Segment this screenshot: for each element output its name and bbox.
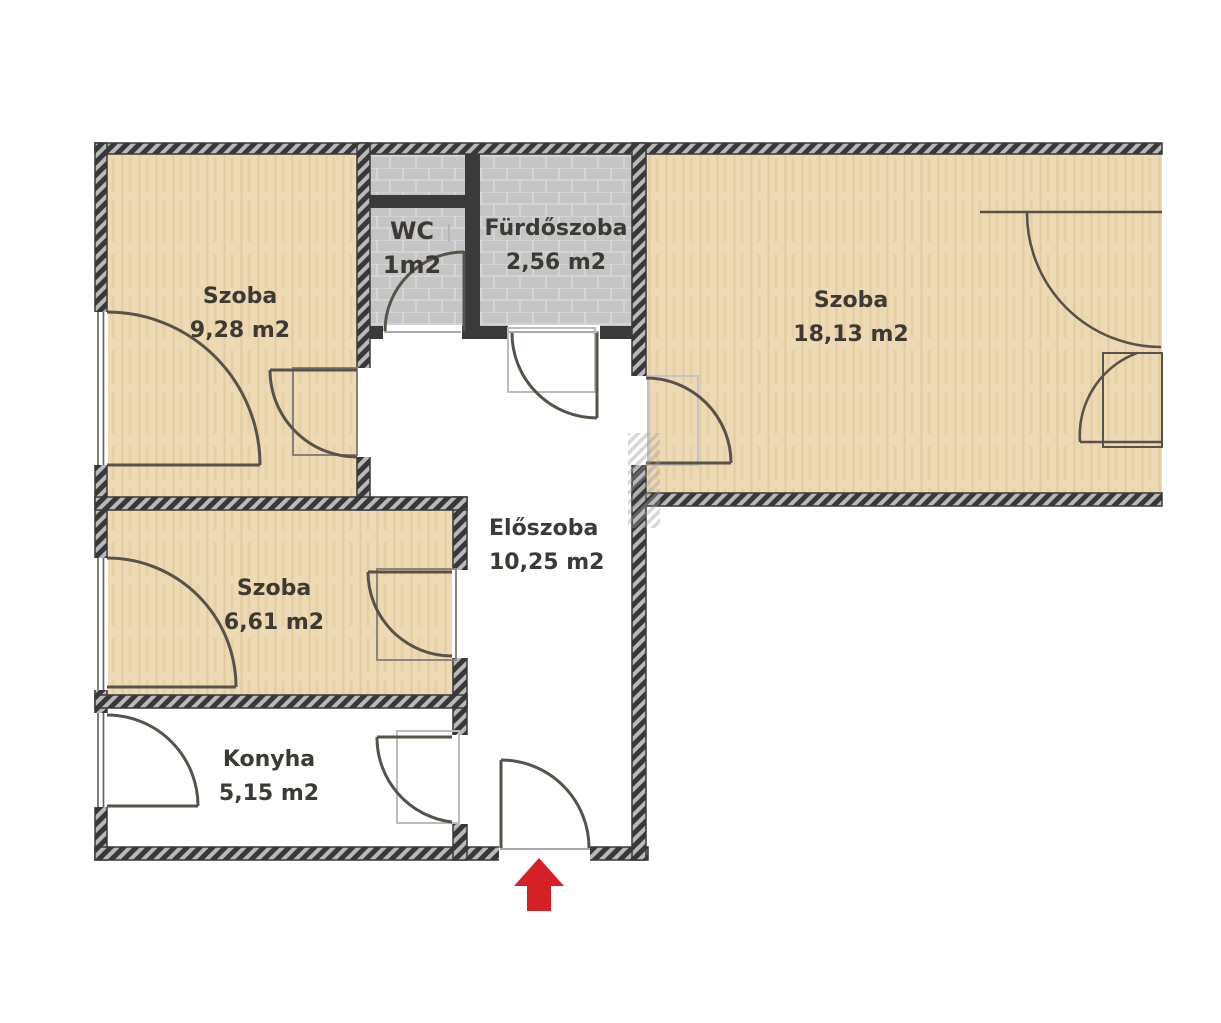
opening-szoba-661 xyxy=(452,570,468,658)
watermark xyxy=(628,433,660,528)
window-szoba-661 xyxy=(94,558,108,690)
room-area: 18,13 m2 xyxy=(793,318,908,352)
room-name: Szoba xyxy=(224,572,324,606)
floorplan-image: Szoba 9,28 m2 WC 1m2 Fürdőszoba 2,56 m2 … xyxy=(0,0,1221,1023)
room-area: 10,25 m2 xyxy=(489,546,604,580)
room-label-szoba-661: Szoba 6,61 m2 xyxy=(224,572,324,640)
room-name: Előszoba xyxy=(489,512,604,546)
room-label-konyha: Konyha 5,15 m2 xyxy=(219,743,319,811)
wall-szoba661-konyha xyxy=(95,695,467,708)
room-label-furdoszoba: Fürdőszoba 2,56 m2 xyxy=(485,212,628,280)
room-name: Fürdőszoba xyxy=(485,212,628,246)
room-area: 5,15 m2 xyxy=(219,777,319,811)
wall-bigroom-bottom xyxy=(632,493,1162,506)
wall-top xyxy=(95,143,1162,154)
room-label-szoba-928: Szoba 9,28 m2 xyxy=(190,280,290,348)
window-konyha xyxy=(94,713,108,807)
floorplan-drawing xyxy=(0,0,1221,1023)
room-label-szoba-1813: Szoba 18,13 m2 xyxy=(793,284,908,352)
entrance-arrow-icon xyxy=(514,858,564,911)
wall-szoba928-szoba661 xyxy=(95,497,467,510)
room-area: 9,28 m2 xyxy=(190,314,290,348)
room-label-wc: WC 1m2 xyxy=(383,214,441,282)
room-name: Szoba xyxy=(190,280,290,314)
room-label-eloszoba: Előszoba 10,25 m2 xyxy=(489,512,604,580)
window-szoba-928 xyxy=(94,312,108,465)
room-area: 6,61 m2 xyxy=(224,606,324,640)
room-area: 1m2 xyxy=(383,248,441,282)
room-name: Szoba xyxy=(793,284,908,318)
wall-wc-bath-divider xyxy=(465,143,480,339)
wall-shaft-divider xyxy=(357,195,480,208)
room-name: Konyha xyxy=(219,743,319,777)
room-area: 2,56 m2 xyxy=(485,246,628,280)
opening-szoba-928 xyxy=(356,368,371,457)
room-name: WC xyxy=(383,214,441,248)
